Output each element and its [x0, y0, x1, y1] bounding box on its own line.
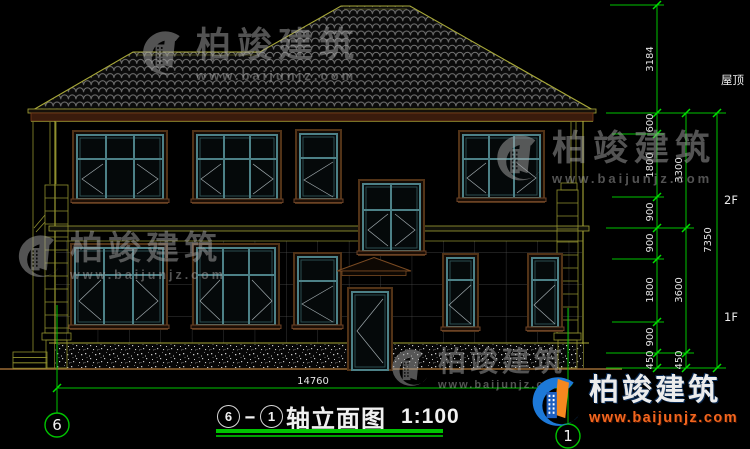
window-2f-mid-left	[193, 131, 281, 203]
front-door	[348, 288, 392, 370]
brand-name-text: 柏竣建筑	[589, 376, 738, 406]
window-1f-narrow-right2	[528, 254, 562, 331]
dim-14760: 14760	[297, 376, 329, 387]
axis-label-6: 6	[52, 416, 62, 434]
hip-roof	[33, 6, 593, 110]
dim-3600: 3600	[674, 277, 685, 302]
window-1f-mid-left	[193, 244, 279, 329]
dim-900-b: 900	[645, 233, 656, 252]
eave-fascia	[28, 109, 596, 122]
dim-7350: 7350	[703, 227, 714, 252]
entry-steps	[13, 352, 47, 368]
window-2f-right	[459, 131, 544, 202]
window-stairwell	[359, 180, 424, 255]
brand-site-text: www.baijunjz.com	[589, 410, 738, 426]
brand-logo-icon	[527, 376, 583, 436]
plinth-texture	[55, 344, 583, 368]
belt-course	[49, 226, 589, 231]
dim-1800-2f: 1800	[645, 152, 656, 177]
dim-3300: 3300	[674, 157, 685, 182]
title-dash: -	[244, 406, 256, 427]
title-underline-thin	[216, 435, 443, 437]
dimension-lines-right: 3184 600 1800 900 900 1800 900 450 3300 …	[606, 1, 744, 372]
dim-900-a: 900	[645, 202, 656, 221]
level-label-1f: 1F	[724, 310, 738, 324]
window-1f-left	[71, 244, 167, 329]
brand-logo-footer: 柏竣建筑 www.baijunjz.com	[527, 376, 738, 436]
window-1f-narrow-center	[294, 253, 341, 329]
dim-1800-1f: 1800	[645, 277, 656, 302]
title-axis-from-bubble: 6	[217, 405, 240, 428]
window-2f-narrow	[296, 130, 341, 203]
level-label-roof: 屋顶	[721, 73, 744, 87]
title-underline-thick	[216, 429, 443, 433]
dim-600: 600	[645, 113, 656, 132]
dim-3184: 3184	[645, 46, 656, 71]
dimension-bottom-width: 14760	[53, 376, 572, 392]
dim-900-c: 900	[645, 327, 656, 346]
dim-450-a: 450	[645, 350, 656, 369]
window-2f-left	[73, 131, 167, 203]
title-axis-to-bubble: 1	[260, 405, 283, 428]
window-1f-narrow-right1	[443, 254, 478, 331]
dim-450-b: 450	[674, 350, 685, 369]
cad-elevation-screenshot: 3184 600 1800 900 900 1800 900 450 3300 …	[0, 0, 750, 449]
level-label-2f: 2F	[724, 193, 738, 207]
title-scale: 1:100	[401, 405, 460, 429]
